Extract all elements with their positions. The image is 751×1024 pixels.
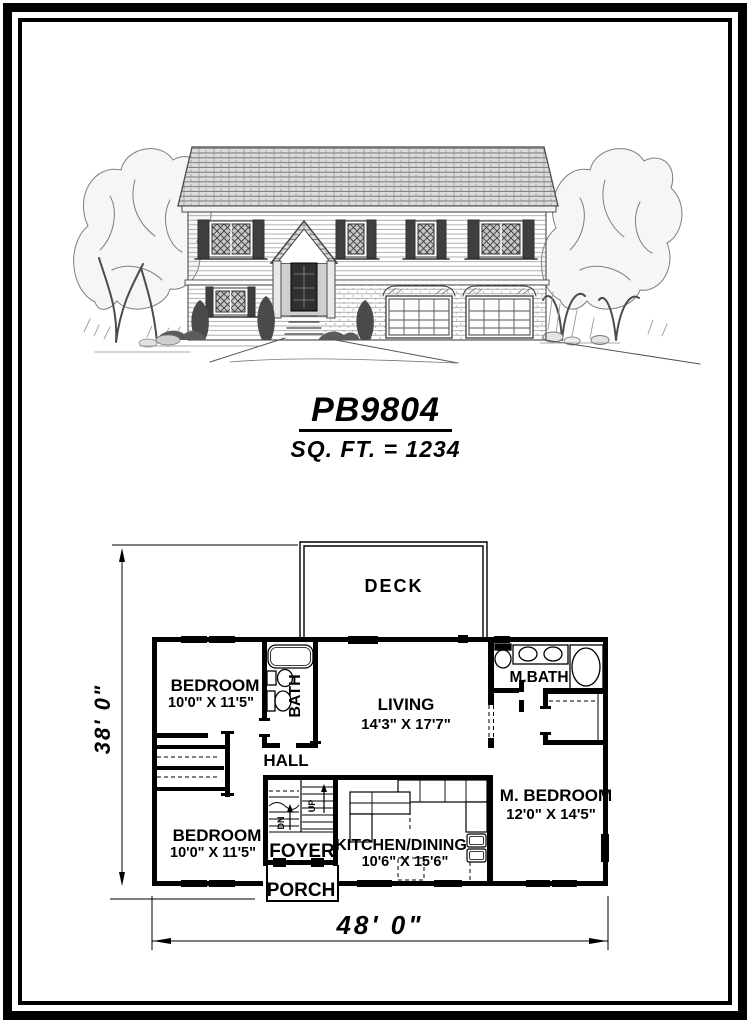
- mbedroom-label: M. BEDROOM: [500, 786, 612, 805]
- width-dimension-text: 48' 0": [335, 910, 423, 940]
- roof-fascia: [182, 206, 556, 212]
- bedroom-top-dims: 10'0" X 11'5": [168, 695, 254, 711]
- toilet-tank: [267, 691, 275, 711]
- roof: [178, 147, 558, 206]
- depth-dimension-text: 38' 0": [90, 684, 115, 754]
- window-upper-4: [465, 220, 537, 259]
- bedroom-bottom-dims: 10'0" X 11'5": [170, 845, 256, 861]
- cased-opening: [489, 705, 494, 738]
- plan-sheet-art: DECK BEDROOM 10'0" X 11'5" BATH LIVING 1…: [0, 0, 751, 1024]
- mbath-toilet-bowl: [495, 650, 511, 668]
- hall-label: HALL: [263, 751, 308, 770]
- kitchen-label: KITCHEN/DINING: [335, 837, 467, 854]
- deck-label: DECK: [364, 576, 423, 596]
- vanity: [513, 645, 568, 664]
- square-footage: SQ. FT. = 1234: [0, 436, 751, 463]
- bath-label: BATH: [287, 674, 304, 717]
- title-block: PB9804 SQ. FT. = 1234: [0, 393, 751, 463]
- bathtub: [268, 645, 313, 668]
- window-upper-2: [333, 220, 379, 259]
- kitchen-dims: 10'6" X 15'6": [362, 854, 449, 870]
- foyer-label: FOYER: [269, 841, 335, 862]
- elevation-sketch: [74, 147, 700, 364]
- porch-label: PORCH: [267, 880, 336, 901]
- plan-sheet-page: DECK BEDROOM 10'0" X 11'5" BATH LIVING 1…: [0, 0, 751, 1024]
- window-upper-1: [195, 220, 267, 259]
- band-trim: [185, 280, 549, 285]
- window-lower-left: [204, 287, 258, 317]
- dn-label: DN: [276, 817, 286, 830]
- window-upper-3: [403, 220, 449, 259]
- mbath-label: M.BATH: [509, 669, 568, 686]
- floor-plan: DECK BEDROOM 10'0" X 11'5" BATH LIVING 1…: [90, 542, 612, 950]
- tree-right: [541, 149, 682, 345]
- ground: [95, 338, 700, 364]
- bedroom-bottom-label: BEDROOM: [173, 826, 262, 845]
- bath-sink: [267, 671, 276, 685]
- bedroom-top-label: BEDROOM: [171, 676, 260, 695]
- corner-tub: [570, 645, 603, 690]
- mbath-toilet-tank: [495, 644, 511, 650]
- living-label: LIVING: [378, 695, 435, 714]
- mbedroom-dims: 12'0" X 14'5": [506, 806, 596, 823]
- up-label: UP: [307, 800, 317, 813]
- plan-code: PB9804: [299, 393, 452, 432]
- living-dims: 14'3" X 17'7": [361, 716, 451, 733]
